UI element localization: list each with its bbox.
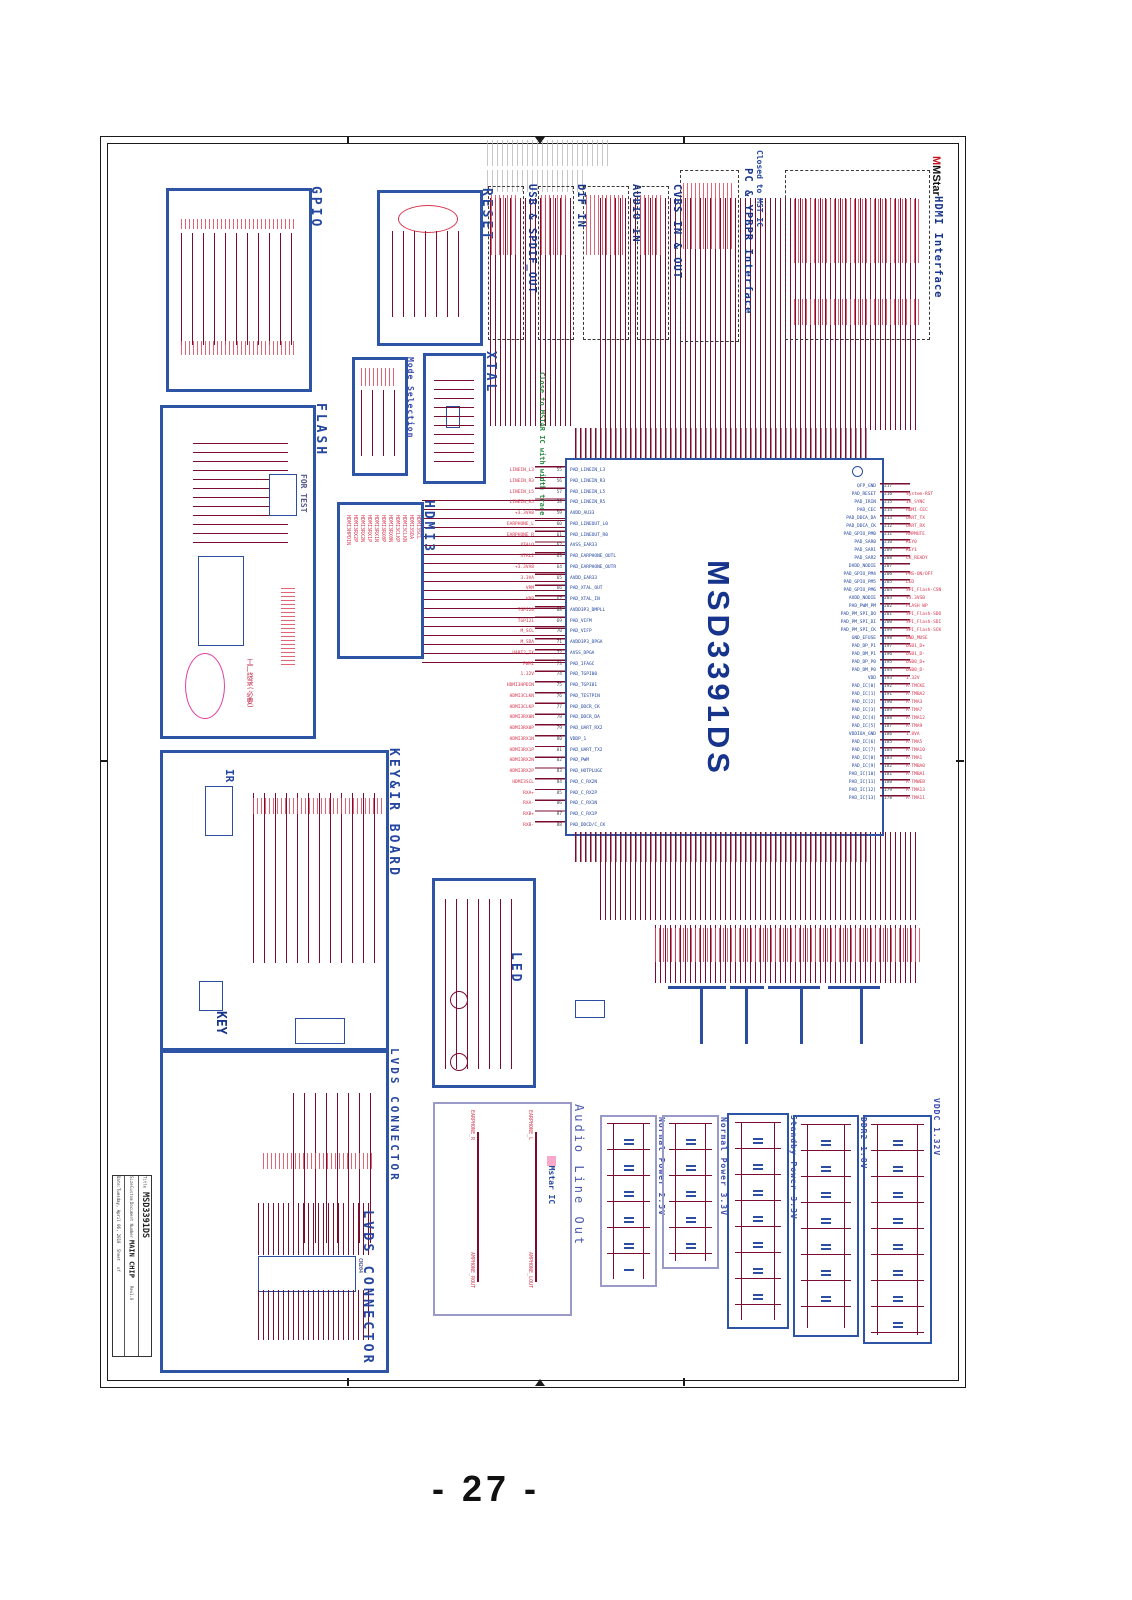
ledin-connector <box>295 1018 345 1044</box>
bus-line <box>768 986 820 989</box>
size-label: Size <box>129 1176 134 1186</box>
xtal-block <box>423 353 486 484</box>
mode-selection-block <box>352 357 408 476</box>
chip-right-nets: System-RSTIR_SYNCHDMI-CECUART_TXUART_RXA… <box>906 483 962 803</box>
frame-tick <box>347 1378 349 1386</box>
chip-left-pin-numbers: 5556575859606162636465666768697071727374… <box>544 466 562 832</box>
title-block-date-row: Date: Tuesday, April 06, 2010 Sheet of <box>113 1176 124 1356</box>
mstar-ic-note: Mstar IC <box>547 1156 556 1204</box>
power-block-stby <box>727 1113 789 1329</box>
audio-wire-r <box>535 1132 537 1282</box>
sheet-label: Sheet <box>116 1249 121 1261</box>
rev-label: Rev <box>129 1286 134 1293</box>
cap-ladder <box>607 1123 650 1279</box>
chip-left-nets: LINEIN_L3LINEIN_R3LINEIN_L5LINEIN_R5+3.3… <box>458 466 534 832</box>
key-connector <box>199 981 223 1011</box>
for-test-label: FOR TEST <box>299 474 308 513</box>
title-block-title-row: Title MSD3391DS <box>138 1176 151 1356</box>
transistor-q501 <box>450 991 468 1009</box>
gpio-signal-strip <box>181 219 297 229</box>
audio-signal-earphone-r: EARPHONE_R <box>469 1110 475 1140</box>
led-label: LED <box>508 952 523 984</box>
date-label: Date: <box>116 1176 121 1188</box>
mode-selection-label: Mode Selection <box>406 357 415 438</box>
doc-number-value: MAIN CHIP <box>128 1240 136 1278</box>
page-number: - 27 - <box>432 1468 540 1510</box>
bus-line <box>860 986 863 1044</box>
title-value: MSD3391DS <box>140 1192 150 1238</box>
mstar-logo: MMStar <box>930 156 942 196</box>
ypbpr-label: PC & YPBPR Interface <box>742 168 754 314</box>
lvds-conn-wires2 <box>258 1290 373 1340</box>
of-label: of <box>116 1267 121 1272</box>
power-block-2v5 <box>600 1115 657 1287</box>
audio-wire-l <box>477 1132 479 1282</box>
date-value: Tuesday, April 06, 2010 <box>116 1188 121 1243</box>
ir-connector <box>205 786 233 836</box>
pin1-marker <box>852 466 863 477</box>
hdmi-label: HDMI Interface <box>932 196 944 299</box>
usb-spdif-box <box>488 186 524 340</box>
audio-in-labels <box>586 195 624 255</box>
key-label: KEY <box>213 1011 228 1034</box>
chip-left-pads: PAD_LINEIN_L3PAD_LINEIN_R3PAD_LINEIN_L5P… <box>570 466 662 832</box>
net-label-strip <box>655 928 920 962</box>
reset-wires <box>392 231 468 317</box>
mstar-ic-text: Mstar IC <box>547 1166 556 1205</box>
chip-right-pin-numbers: 2172162152142132122112102092082072062052… <box>884 483 902 803</box>
lvds-conn-wires <box>258 1203 373 1255</box>
lvds-inner-label: LVDS CONNECTOR <box>360 1210 376 1366</box>
flash-signal-strip <box>281 588 295 668</box>
frame-tick <box>683 1378 685 1386</box>
power-block-vddc <box>863 1115 932 1344</box>
usb-spdif-label: USB & SPDIF_OUT <box>526 184 538 294</box>
cap-ladder <box>735 1122 781 1320</box>
audio-signal-amphone-lout: AMPHONE_LOUT <box>527 1252 533 1288</box>
hdmi3-signals: HDMI3HPDINHDMI3RX2PHDMI3RX2NHDMI3RX1PHDM… <box>345 515 421 545</box>
doc-number-label: Document Number <box>129 1202 134 1238</box>
rev-value: 1.0 <box>129 1293 134 1300</box>
xtal-wires <box>434 380 474 464</box>
hdmi3-block: HDMI3HPDINHDMI3RX2PHDMI3RX2NHDMI3RX1PHDM… <box>337 502 424 659</box>
mstar-logo-accent: M <box>930 156 942 165</box>
chip-right-pads: QFP_GNDPAD_RESETPAD_IRINPAD_CECPAD_DDCA_… <box>786 483 876 803</box>
frame-arrow-bottom <box>535 1379 545 1386</box>
factory-program-note: 工厂烧录(必要) <box>245 658 255 708</box>
hdmi3-label: HDMI3 <box>421 500 436 554</box>
gpio-label: GPIO <box>308 186 323 229</box>
flash-label: FLASH <box>313 403 328 457</box>
transistor-q502 <box>450 1053 468 1071</box>
mode-selection-wires <box>361 390 397 456</box>
cvbs-box <box>637 186 669 340</box>
cap-ladder <box>801 1124 851 1328</box>
flash-block: FOR TEST 工厂烧录(必要) <box>160 405 316 739</box>
ypbpr-labels <box>683 183 733 249</box>
cvbs-labels <box>640 195 664 255</box>
key-ir-label: KEY&IR BOARD <box>386 748 401 878</box>
frame-tick <box>683 136 685 144</box>
audio-signal-earphone-l: EARPHONE_L <box>527 1110 533 1140</box>
power-block-3v3 <box>662 1115 719 1269</box>
frame-tick <box>100 760 108 762</box>
reset-highlight-ellipse <box>398 205 458 233</box>
gpio-signal-strip <box>181 341 297 355</box>
schematic-page: GPIO RESET USB & SPDIF_OUT DIF IN AUDIO … <box>0 0 1132 1600</box>
ypbpr-note: Closed to MST IC <box>755 150 764 227</box>
hdmi-box <box>785 170 930 340</box>
mstar-logo-text: MStar <box>930 165 942 196</box>
bus-line <box>668 986 726 989</box>
title-label: Title <box>143 1176 148 1188</box>
chip-pins-top <box>575 428 870 458</box>
xtal-label: XTAL <box>483 351 498 394</box>
mode-selection-labels <box>361 368 397 386</box>
hdmi-labels2 <box>794 299 919 325</box>
lvds-connector-cn204 <box>258 1256 356 1292</box>
dif-in-box <box>538 186 574 340</box>
key-ir-wires <box>253 793 383 963</box>
power-label-vddc: VDDC 1.32V <box>932 1098 941 1156</box>
mstar-ic-highlight <box>547 1156 556 1166</box>
frame-tick <box>347 136 349 144</box>
chip-pins-bottom <box>575 832 870 862</box>
audio-line-out-label: Audio Line Out <box>572 1104 586 1247</box>
gpio-block <box>166 188 312 392</box>
title-block-doc-row: Size Custom Document Number MAIN CHIP Re… <box>124 1176 138 1356</box>
key-ir-labels <box>253 798 383 814</box>
audio-signal-amphone-rout: AMPHONE_ROUT <box>469 1252 475 1288</box>
factory-program-ellipse <box>185 653 225 719</box>
small-component <box>575 1000 605 1018</box>
gpio-wires <box>181 233 297 345</box>
usb-labels <box>491 195 519 255</box>
size-value: Custom <box>129 1186 134 1200</box>
hdmi-labels <box>794 199 919 263</box>
audio-line-out-block: EARPHONE_R EARPHONE_L AMPHONE_ROUT AMPHO… <box>433 1102 572 1316</box>
lvds-label: LVDS CONNECTOR <box>388 1048 401 1183</box>
bus-line <box>828 986 880 989</box>
power-block-ddr2 <box>793 1115 859 1337</box>
title-block: Date: Tuesday, April 06, 2010 Sheet of S… <box>112 1175 152 1357</box>
bus-line <box>800 986 803 1044</box>
flash-testpad-box <box>269 474 297 516</box>
flash-ic-u17 <box>198 556 244 646</box>
cap-ladder <box>669 1123 712 1261</box>
ypbpr-box <box>680 170 739 342</box>
lvds-net-strip <box>263 1153 373 1169</box>
ir-label: IR <box>223 769 236 782</box>
chip-name: MSD3391DS <box>700 560 736 777</box>
key-ir-block: IR KEY <box>160 750 389 1051</box>
bus-line <box>700 986 703 1044</box>
audio-in-box <box>583 186 629 340</box>
cap-ladder <box>871 1124 924 1335</box>
reset-block <box>377 190 483 346</box>
dif-labels <box>541 195 569 255</box>
gray-netnames <box>487 140 612 166</box>
lvds-block: CN204 <box>160 1050 389 1373</box>
bus-line <box>745 986 748 1044</box>
